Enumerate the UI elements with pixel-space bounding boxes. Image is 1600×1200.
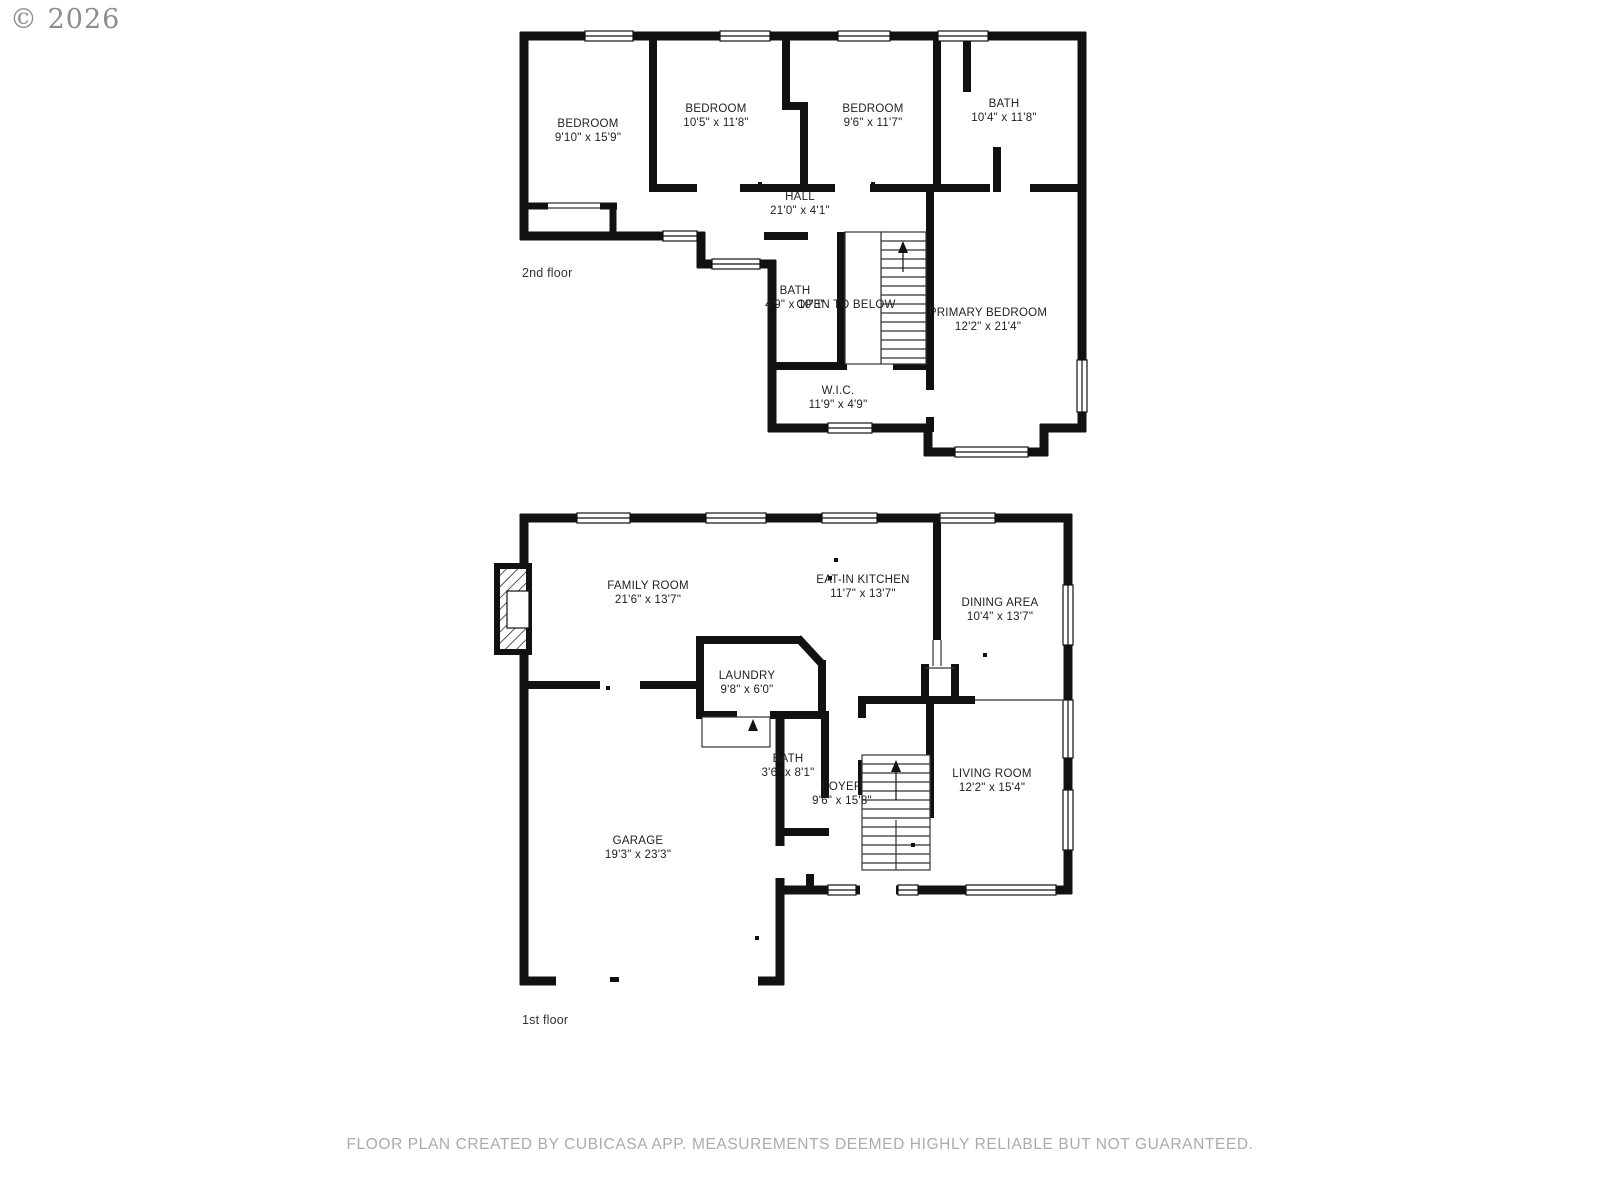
second-floor-walls xyxy=(520,32,1086,456)
room-label-bedroom-1: BEDROOM9'10" x 15'9" xyxy=(555,117,621,145)
room-label-foyer: FOYER9'6" x 15'8" xyxy=(812,780,872,808)
room-label-bedroom-2: BEDROOM10'5" x 11'8" xyxy=(683,102,748,130)
room-label-eat-in-kitchen: EAT-IN KITCHEN11'7" x 13'7" xyxy=(816,573,909,601)
fireplace xyxy=(497,566,529,652)
room-label-bedroom-3: BEDROOM9'6" x 11'7" xyxy=(842,102,903,130)
room-label-primary-bedroom: PRIMARY BEDROOM12'2" x 21'4" xyxy=(929,306,1047,334)
room-label-dining-area: DINING AREA10'4" x 13'7" xyxy=(962,596,1039,624)
floorplan-drawing xyxy=(0,0,1600,1200)
second-floor-closet xyxy=(526,203,617,232)
first-floor-walls xyxy=(520,514,1072,985)
floorplan-page: © 2026 xyxy=(0,0,1600,1200)
room-label-open-to-below: OPEN TO BELOW xyxy=(796,298,895,312)
room-label-laundry: LAUNDRY9'8" x 6'0" xyxy=(719,669,776,697)
room-label-family-room: FAMILY ROOM21'6" x 13'7" xyxy=(607,579,689,607)
room-label-garage: GARAGE19'3" x 23'3" xyxy=(605,834,671,862)
footer-disclaimer: FLOOR PLAN CREATED BY CUBICASA APP. MEAS… xyxy=(0,1136,1600,1154)
room-label-hall: HALL21'0" x 4'1" xyxy=(770,190,830,218)
floor-label-2nd: 2nd floor xyxy=(522,266,572,280)
room-label-living-room: LIVING ROOM12'2" x 15'4" xyxy=(952,767,1031,795)
room-label-bath-upper: BATH10'4" x 11'8" xyxy=(971,97,1036,125)
floor-label-1st: 1st floor xyxy=(522,1013,568,1027)
room-label-bath-1st: BATH3'6" x 8'1" xyxy=(761,752,814,780)
second-floor-thin-lines xyxy=(548,203,926,364)
room-label-wic: W.I.C.11'9" x 4'9" xyxy=(809,384,868,412)
